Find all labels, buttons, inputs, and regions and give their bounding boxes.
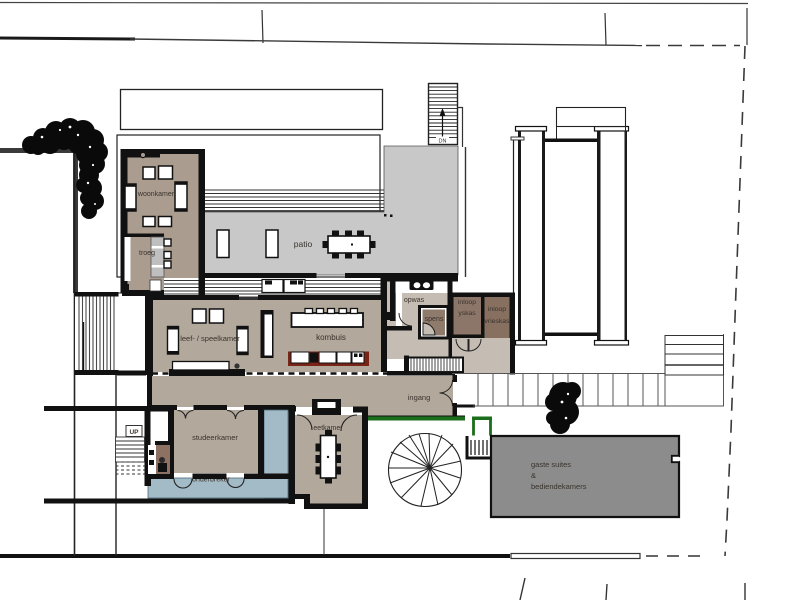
svg-text:bediendekamers: bediendekamers xyxy=(531,482,587,491)
svg-text:ingang: ingang xyxy=(408,393,431,402)
svg-text:gaste suites: gaste suites xyxy=(531,460,571,469)
svg-text:UP: UP xyxy=(129,429,139,436)
svg-text:inloop: inloop xyxy=(488,306,506,313)
svg-text:inloop: inloop xyxy=(458,299,476,306)
svg-text:patio: patio xyxy=(294,239,313,249)
svg-text:woonkamer: woonkamer xyxy=(137,191,175,198)
svg-text:troeg: troeg xyxy=(139,250,155,257)
svg-text:opwas: opwas xyxy=(404,297,425,304)
svg-text:&: & xyxy=(531,471,536,480)
svg-text:DN: DN xyxy=(439,139,447,145)
svg-text:kombuis: kombuis xyxy=(316,333,346,342)
svg-text:vrieskas: vrieskas xyxy=(485,318,511,325)
svg-text:leef- / speelkamer: leef- / speelkamer xyxy=(180,334,240,343)
svg-text:yskas: yskas xyxy=(458,310,476,317)
svg-text:spens: spens xyxy=(425,316,444,323)
svg-text:studeerkamer: studeerkamer xyxy=(192,433,238,442)
